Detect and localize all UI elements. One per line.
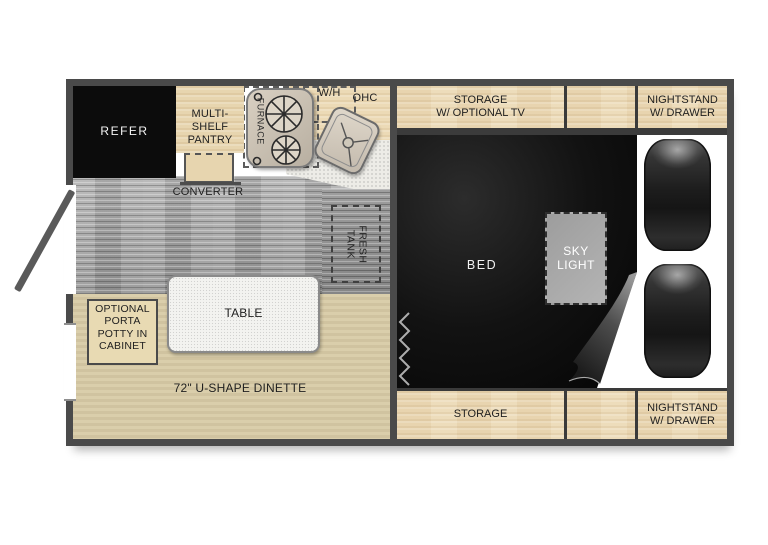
pantry-label: MULTI- SHELF PANTRY [174,108,246,147]
storage-tv-label: STORAGE W/ OPTIONAL TV [436,94,525,120]
furnace-label: FURNACE [255,91,266,151]
bedroom-top-cabinets: STORAGE W/ OPTIONAL TV NIGHTSTAND W/ DRA… [397,86,727,135]
truck-seat-bottom [644,264,711,378]
overhead-cabinet-label: OHC [340,92,390,105]
nightstand-bottom: NIGHTSTAND W/ DRAWER [635,391,727,439]
dinette-label: 72" U-SHAPE DINETTE [130,381,350,395]
bed-label: BED [442,258,522,273]
converter-label: CONVERTER [168,186,248,199]
truck-seat-top [644,139,711,251]
nightstand-bottom-label: NIGHTSTAND W/ DRAWER [647,402,718,428]
table-label: TABLE [167,306,320,320]
fresh-tank-label: FRESH TANK [344,204,369,284]
skylight: SKY LIGHT [545,212,607,305]
storage-cabinet-bottom: STORAGE [397,391,564,439]
blank-cabinet-top [564,86,635,128]
nightstand-top: NIGHTSTAND W/ DRAWER [635,86,727,128]
porta-potty-label: OPTIONAL PORTA POTTY IN CABINET [86,303,159,353]
storage-bottom-label: STORAGE [454,408,508,421]
refrigerator-label: REFER [73,124,176,138]
nightstand-top-label: NIGHTSTAND W/ DRAWER [647,94,718,120]
center-wall [390,79,397,446]
left-wall-window [64,323,76,401]
converter-base-line [180,182,241,185]
converter-cabinet [184,153,234,183]
floorplan-canvas: REFER MULTI- SHELF PANTRY CONVERTER [0,0,768,545]
bedroom-bottom-cabinets: STORAGE NIGHTSTAND W/ DRAWER [397,388,727,439]
blank-cabinet-bottom [564,391,635,439]
storage-tv-cabinet: STORAGE W/ OPTIONAL TV [397,86,564,128]
skylight-label: SKY LIGHT [557,245,595,273]
